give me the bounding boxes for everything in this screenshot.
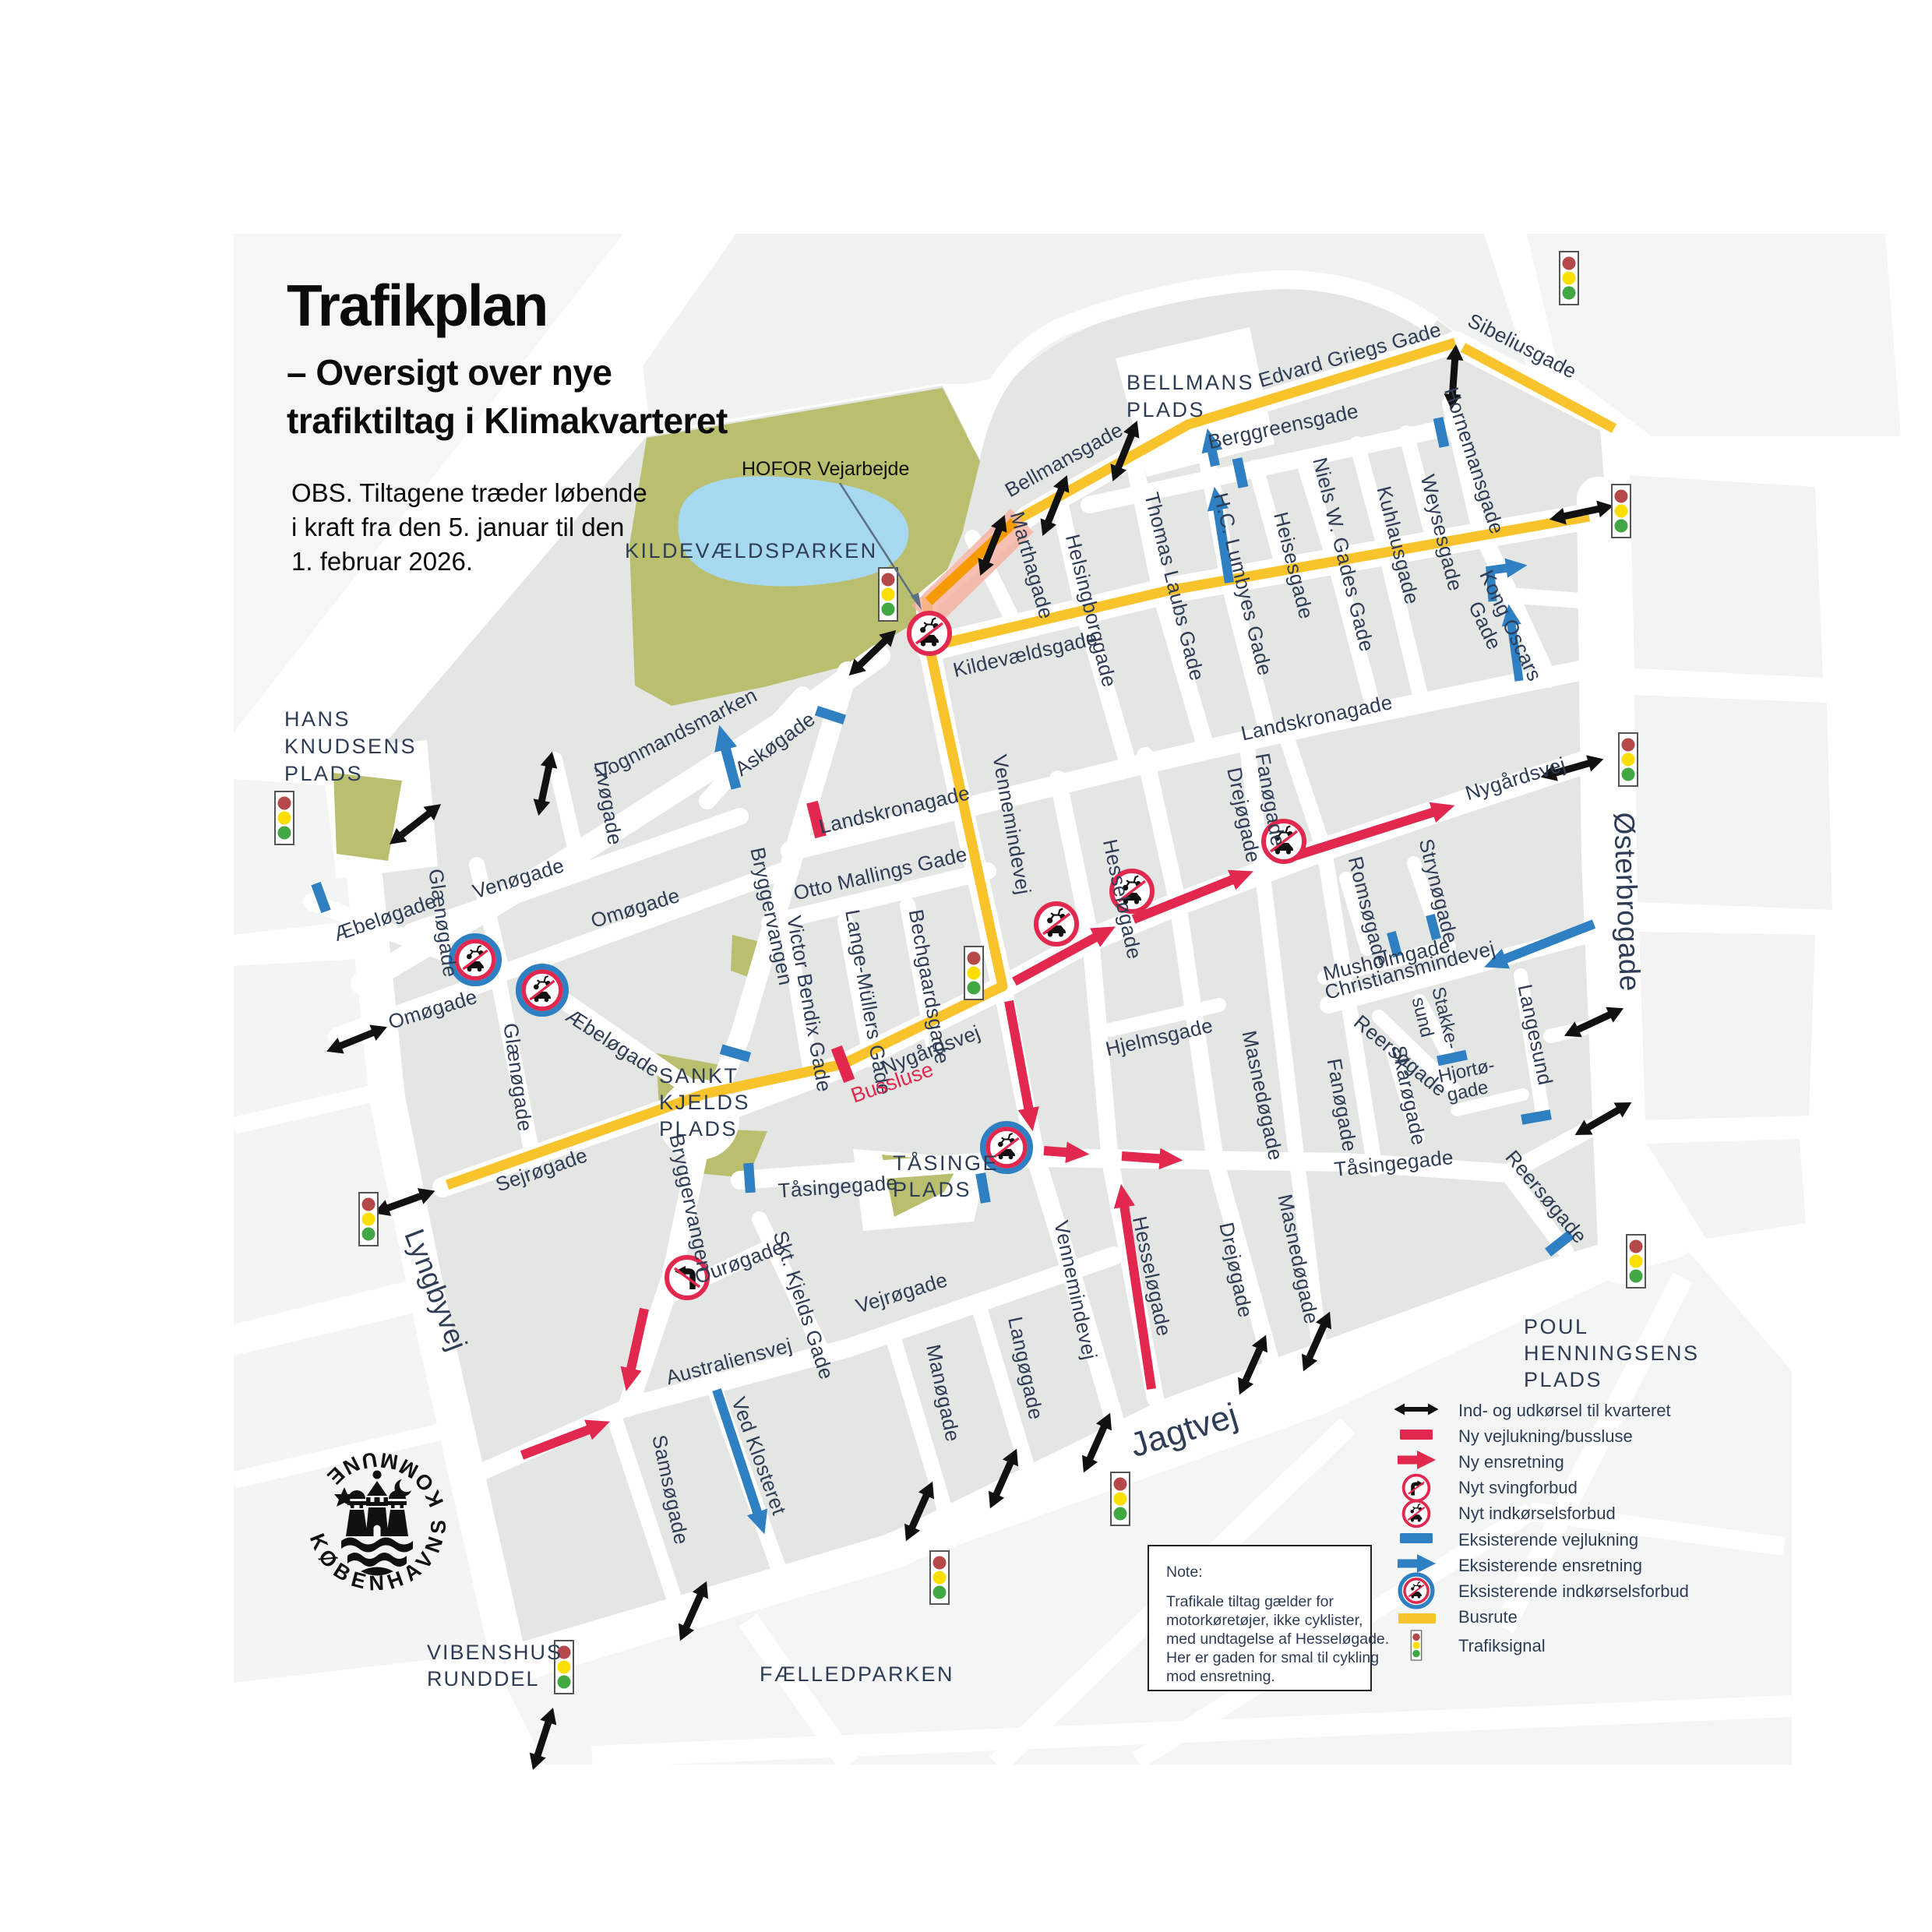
svg-text:PLADS: PLADS: [893, 1178, 971, 1201]
svg-text:KILDEVÆLDSPARKEN: KILDEVÆLDSPARKEN: [625, 539, 878, 562]
svg-text:RUNDDEL: RUNDDEL: [427, 1667, 540, 1690]
svg-text:Trafiksignal: Trafiksignal: [1458, 1636, 1546, 1655]
svg-text:OBS. Tiltagene træder løbende: OBS. Tiltagene træder løbende: [291, 478, 647, 507]
svg-text:Østerbrogade: Østerbrogade: [1608, 812, 1646, 992]
svg-text:Ny ensretning: Ny ensretning: [1458, 1452, 1564, 1472]
svg-text:PLADS: PLADS: [284, 762, 363, 785]
svg-text:trafiktiltag i Klimakvarteret: trafiktiltag i Klimakvarteret: [287, 400, 728, 441]
svg-text:Trafikplan: Trafikplan: [287, 273, 547, 338]
svg-text:– Oversigt over nye: – Oversigt over nye: [287, 352, 612, 393]
svg-text:mod ensretning.: mod ensretning.: [1166, 1668, 1275, 1685]
svg-text:HOFOR Vejarbejde: HOFOR Vejarbejde: [742, 458, 909, 480]
svg-text:Nyt svingforbud: Nyt svingforbud: [1458, 1478, 1578, 1497]
svg-text:SANKT: SANKT: [659, 1064, 739, 1088]
svg-text:FÆLLEDPARKEN: FÆLLEDPARKEN: [760, 1662, 954, 1686]
svg-text:Ind- og udkørsel til kvarteret: Ind- og udkørsel til kvarteret: [1458, 1401, 1671, 1420]
svg-text:POUL: POUL: [1524, 1315, 1589, 1338]
svg-text:Busrute: Busrute: [1458, 1607, 1518, 1627]
svg-text:Nyt indkørselsforbud: Nyt indkørselsforbud: [1458, 1504, 1616, 1523]
svg-text:med undtagelse af Hesseløgade.: med undtagelse af Hesseløgade.: [1166, 1631, 1389, 1648]
svg-text:Ny vejlukning/bussluse: Ny vejlukning/bussluse: [1458, 1426, 1633, 1446]
svg-text:Eksisterende ensretning: Eksisterende ensretning: [1458, 1556, 1642, 1575]
svg-text:TÅSINGE: TÅSINGE: [893, 1151, 999, 1175]
svg-text:HENNINGSENS: HENNINGSENS: [1524, 1341, 1700, 1365]
svg-text:Note:: Note:: [1166, 1564, 1203, 1581]
svg-text:HANS: HANS: [284, 707, 351, 731]
svg-text:BELLMANS: BELLMANS: [1126, 371, 1254, 394]
svg-text:VIBENSHUS: VIBENSHUS: [427, 1641, 562, 1664]
svg-text:i kraft fra den 5. januar til: i kraft fra den 5. januar til den: [291, 513, 624, 541]
svg-text:motorkøretøjer, ikke cyklister: motorkøretøjer, ikke cyklister,: [1166, 1612, 1363, 1629]
svg-text:Eksisterende indkørselsforbud: Eksisterende indkørselsforbud: [1458, 1581, 1689, 1601]
svg-text:Eksisterende vejlukning: Eksisterende vejlukning: [1458, 1530, 1638, 1549]
svg-text:Her er gaden for smal til cykl: Her er gaden for smal til cykling: [1166, 1649, 1379, 1666]
svg-text:PLADS: PLADS: [1524, 1368, 1602, 1391]
svg-text:KNUDSENS: KNUDSENS: [284, 735, 417, 758]
svg-text:PLADS: PLADS: [1126, 398, 1205, 421]
svg-text:1. februar 2026.: 1. februar 2026.: [291, 547, 473, 576]
svg-text:PLADS: PLADS: [659, 1117, 738, 1141]
svg-text:Trafikale tiltag gælder for: Trafikale tiltag gælder for: [1166, 1593, 1334, 1610]
svg-text:KJELDS: KJELDS: [659, 1091, 750, 1114]
